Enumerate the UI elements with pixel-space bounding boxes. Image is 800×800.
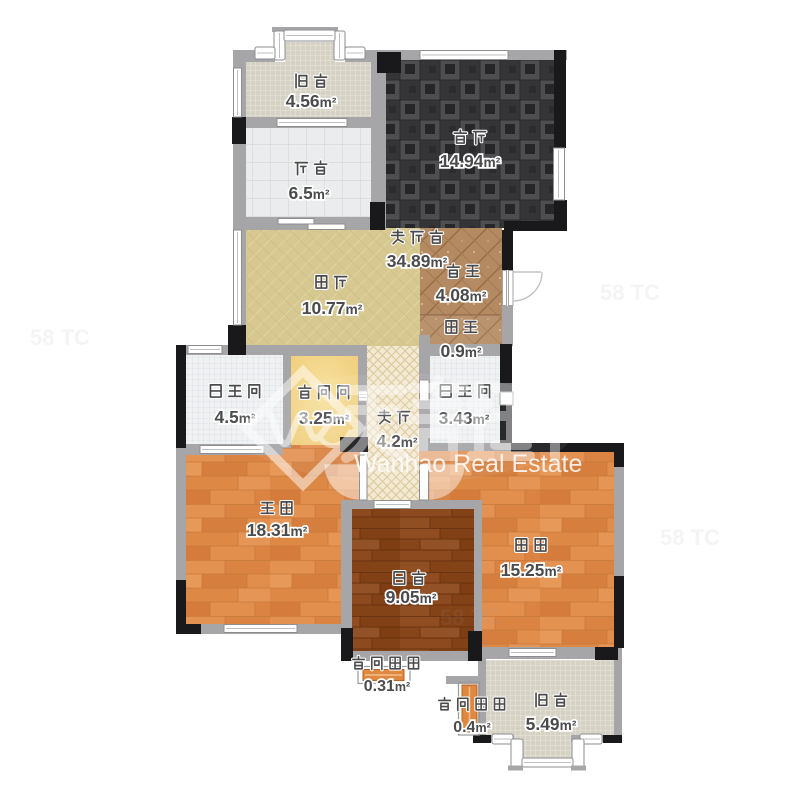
svg-text:0.4m²: 0.4m²	[453, 719, 491, 736]
svg-text:Wanhao Real Estate: Wanhao Real Estate	[354, 450, 582, 478]
svg-text:58 TC: 58 TC	[660, 525, 720, 550]
svg-text:58 TC: 58 TC	[30, 325, 90, 350]
svg-text:0.31m²: 0.31m²	[364, 678, 410, 695]
svg-text:58 TC: 58 TC	[440, 605, 500, 630]
svg-text:58 TC: 58 TC	[600, 280, 660, 305]
